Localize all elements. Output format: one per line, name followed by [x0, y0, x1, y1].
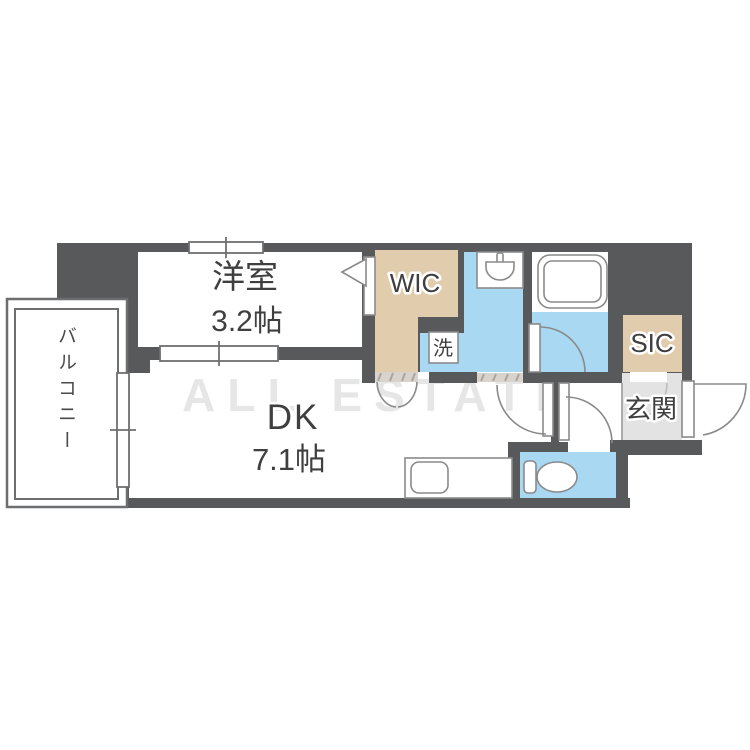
wall-sic-right: [682, 315, 692, 383]
wall-bottom: [117, 498, 630, 508]
washroom-door-leaf: [543, 383, 553, 436]
wall-top-right-mass: [618, 243, 692, 315]
laundry-label: 洗: [433, 337, 453, 360]
floor-plan: ALL ESTATE: [0, 0, 750, 750]
western-room-size: 3.2帖: [211, 305, 283, 338]
dk-label: DK: [267, 398, 320, 437]
toilet-door-leaf: [559, 383, 569, 440]
dk-size: 7.1帖: [252, 442, 326, 477]
wall-bath-right: [608, 243, 618, 383]
wall-top-left-block: [57, 243, 130, 307]
floor-plan-drawing: ALL ESTATE: [0, 0, 750, 750]
wall-entrance-bottom: [610, 440, 702, 455]
front-door-swing-arc: [694, 384, 746, 435]
wall-wic-notch: [418, 317, 458, 333]
toilet-tank-icon: [524, 461, 536, 493]
wall-wic-washroom: [458, 243, 465, 333]
toilet-door-opening: [568, 441, 610, 452]
wall-hall-top-left: [429, 372, 477, 383]
bath-lower-floor: [532, 312, 608, 372]
bath-door-leaf: [529, 324, 540, 372]
kitchen-sink-icon: [411, 462, 448, 493]
entrance-label: 玄関: [625, 394, 677, 424]
bathtub-inner-icon: [544, 261, 601, 302]
wic-label: WIC: [390, 268, 441, 298]
balcony-label: バルコニー: [52, 326, 79, 486]
sic-label: SIC: [630, 328, 673, 358]
sic-threshold: [630, 372, 667, 382]
wall-top: [57, 243, 692, 252]
toilet-bowl-icon: [537, 462, 577, 492]
front-door-leaf: [682, 381, 694, 437]
washbasin-bowl-icon: [486, 262, 514, 280]
western-room-label: 洋室: [212, 258, 278, 295]
